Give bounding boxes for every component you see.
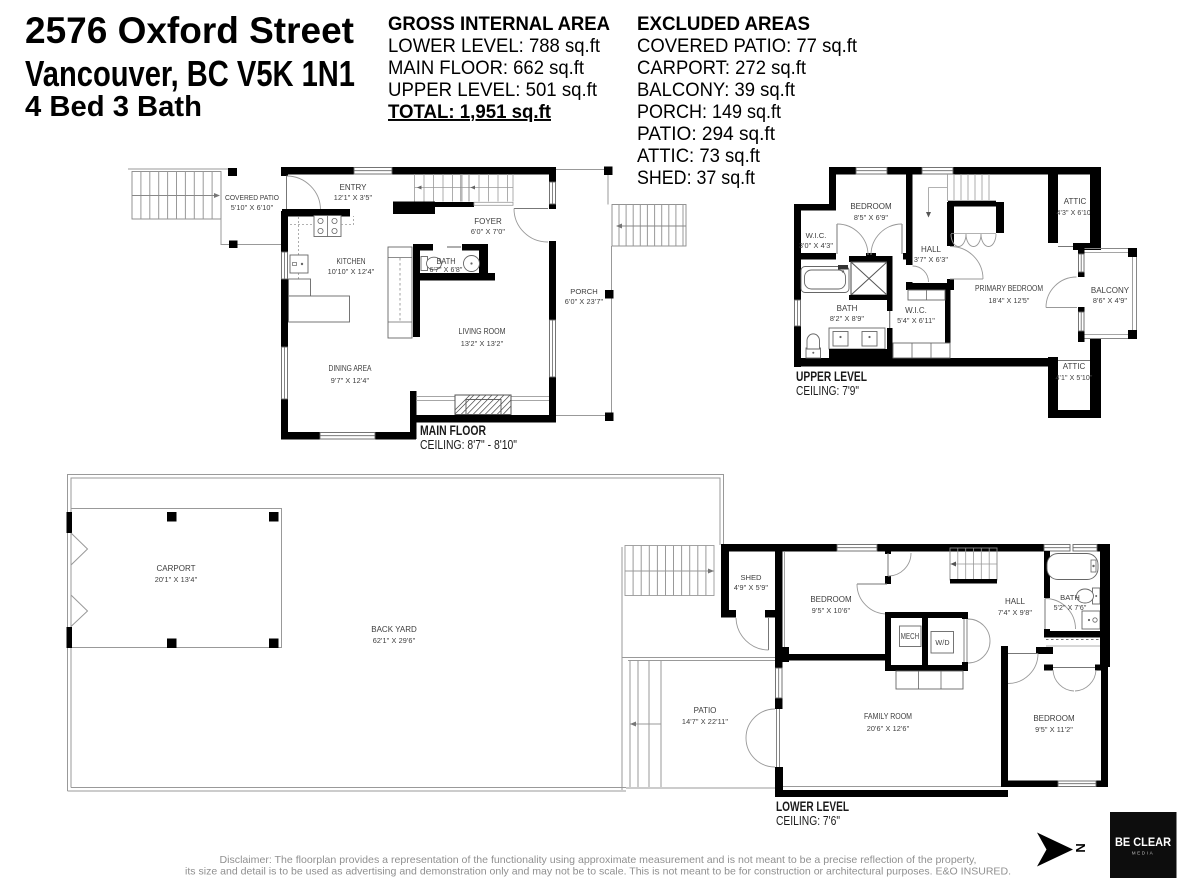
svg-text:PRIMARY BEDROOM: PRIMARY BEDROOM: [975, 284, 1043, 293]
svg-text:FOYER: FOYER: [474, 217, 502, 226]
svg-text:ATTIC: 73 sq.ft: ATTIC: 73 sq.ft: [637, 145, 761, 167]
svg-text:PATIO: PATIO: [694, 706, 717, 715]
svg-text:HALL: HALL: [921, 245, 942, 254]
svg-text:BEDROOM: BEDROOM: [850, 202, 892, 211]
svg-text:LOWER LEVEL: 788 sq.ft: LOWER LEVEL: 788 sq.ft: [388, 35, 601, 57]
svg-text:4'1" X 5'10": 4'1" X 5'10": [1056, 373, 1093, 382]
svg-text:18'4" X 12'5": 18'4" X 12'5": [989, 296, 1030, 305]
svg-text:CEILING: 7'9": CEILING: 7'9": [796, 383, 859, 398]
svg-text:2576 Oxford Street: 2576 Oxford Street: [25, 10, 354, 51]
svg-text:3'7" X 6'3": 3'7" X 6'3": [914, 255, 949, 264]
svg-text:6'0" X 7'0": 6'0" X 7'0": [471, 227, 506, 236]
svg-text:W/D: W/D: [935, 638, 949, 647]
svg-text:5'10" X 6'10": 5'10" X 6'10": [231, 203, 274, 212]
svg-text:CEILING: 7'6": CEILING: 7'6": [776, 813, 840, 828]
svg-text:Disclaimer: The floorplan prov: Disclaimer: The floorplan provides a rep…: [220, 855, 977, 866]
svg-text:7'4" X 9'8": 7'4" X 9'8": [998, 608, 1033, 617]
svg-text:PATIO: 294 sq.ft: PATIO: 294 sq.ft: [637, 123, 776, 145]
svg-text:FAMILY ROOM: FAMILY ROOM: [864, 712, 912, 721]
svg-text:6'7" X 6'8": 6'7" X 6'8": [430, 265, 463, 274]
svg-text:BALCONY: BALCONY: [1091, 286, 1130, 295]
svg-text:12'1" X 3'5": 12'1" X 3'5": [334, 193, 373, 202]
svg-text:9'7" X 12'4": 9'7" X 12'4": [331, 376, 370, 385]
svg-text:20'6" X 12'6": 20'6" X 12'6": [867, 724, 910, 733]
svg-text:BEDROOM: BEDROOM: [810, 595, 852, 604]
svg-text:PORCH: PORCH: [570, 287, 597, 296]
svg-text:W.I.C.: W.I.C.: [905, 306, 927, 315]
svg-text:ENTRY: ENTRY: [340, 183, 368, 192]
svg-text:BALCONY: 39 sq.ft: BALCONY: 39 sq.ft: [637, 79, 796, 101]
svg-text:BATH: BATH: [837, 304, 858, 313]
svg-text:BATH: BATH: [1060, 593, 1080, 602]
svg-text:4 Bed 3 Bath: 4 Bed 3 Bath: [25, 91, 202, 123]
svg-text:GROSS INTERNAL AREA: GROSS INTERNAL AREA: [388, 13, 610, 35]
svg-text:N: N: [1073, 843, 1088, 852]
svg-text:MAIN FLOOR: MAIN FLOOR: [420, 423, 486, 438]
svg-text:HALL: HALL: [1005, 597, 1026, 606]
svg-text:14'7" X 22'11": 14'7" X 22'11": [682, 717, 728, 726]
svg-text:LOWER LEVEL: LOWER LEVEL: [776, 799, 849, 814]
svg-text:9'5" X 10'6": 9'5" X 10'6": [812, 606, 851, 615]
svg-text:MECH: MECH: [901, 632, 920, 641]
svg-text:3'0" X 4'3": 3'0" X 4'3": [799, 241, 834, 250]
svg-text:ATTIC: ATTIC: [1064, 197, 1087, 206]
svg-text:CARPORT: 272 sq.ft: CARPORT: 272 sq.ft: [637, 57, 807, 79]
svg-text:20'1" X 13'4": 20'1" X 13'4": [155, 575, 198, 584]
svg-text:8'6" X 4'9": 8'6" X 4'9": [1093, 296, 1128, 305]
svg-text:PORCH: 149 sq.ft: PORCH: 149 sq.ft: [637, 101, 782, 123]
svg-text:6'0" X 23'7": 6'0" X 23'7": [565, 297, 604, 306]
svg-text:5'2" X 7'6": 5'2" X 7'6": [1054, 605, 1087, 612]
svg-text:CARPORT: CARPORT: [157, 564, 196, 573]
svg-text:CEILING: 8'7" - 8'10": CEILING: 8'7" - 8'10": [420, 437, 517, 452]
svg-text:UPPER LEVEL: UPPER LEVEL: [796, 369, 867, 384]
svg-text:UPPER LEVEL: 501 sq.ft: UPPER LEVEL: 501 sq.ft: [388, 79, 598, 101]
svg-text:COVERED PATIO: COVERED PATIO: [225, 193, 279, 202]
svg-text:BACK YARD: BACK YARD: [371, 625, 417, 634]
svg-text:MAIN FLOOR: 662 sq.ft: MAIN FLOOR: 662 sq.ft: [388, 57, 585, 79]
svg-text:COVERED PATIO: 77 sq.ft: COVERED PATIO: 77 sq.ft: [637, 35, 858, 57]
svg-text:8'2" X 8'9": 8'2" X 8'9": [830, 314, 865, 323]
svg-text:13'2" X 13'2": 13'2" X 13'2": [461, 339, 504, 348]
svg-text:SHED: 37 sq.ft: SHED: 37 sq.ft: [637, 167, 756, 189]
svg-text:TOTAL: 1,951 sq.ft: TOTAL: 1,951 sq.ft: [388, 101, 551, 123]
svg-text:W.I.C.: W.I.C.: [806, 231, 827, 240]
svg-text:LIVING ROOM: LIVING ROOM: [459, 327, 506, 336]
svg-text:4'3" X 6'10": 4'3" X 6'10": [1057, 208, 1094, 217]
svg-text:its size and detail is to be u: its size and detail is to be used as adv…: [185, 867, 1011, 878]
svg-text:KITCHEN: KITCHEN: [337, 257, 366, 266]
svg-text:EXCLUDED AREAS: EXCLUDED AREAS: [637, 13, 810, 35]
svg-text:ATTIC: ATTIC: [1063, 362, 1086, 371]
svg-text:9'5" X 11'2": 9'5" X 11'2": [1035, 725, 1073, 734]
svg-text:5'4" X 6'11": 5'4" X 6'11": [897, 316, 935, 325]
svg-text:SHED: SHED: [740, 573, 762, 582]
svg-text:Vancouver, BC V5K 1N1: Vancouver, BC V5K 1N1: [25, 53, 355, 94]
svg-text:4'9" X 5'9": 4'9" X 5'9": [734, 583, 769, 592]
svg-text:62'1" X 29'6": 62'1" X 29'6": [373, 636, 416, 645]
svg-text:BE CLEAR: BE CLEAR: [1115, 835, 1171, 849]
svg-text:MEDIA: MEDIA: [1132, 851, 1155, 856]
svg-text:10'10" X 12'4": 10'10" X 12'4": [328, 267, 375, 276]
svg-text:DINING AREA: DINING AREA: [329, 364, 373, 373]
svg-text:8'5" X 6'9": 8'5" X 6'9": [854, 213, 889, 222]
svg-text:BEDROOM: BEDROOM: [1033, 714, 1075, 723]
